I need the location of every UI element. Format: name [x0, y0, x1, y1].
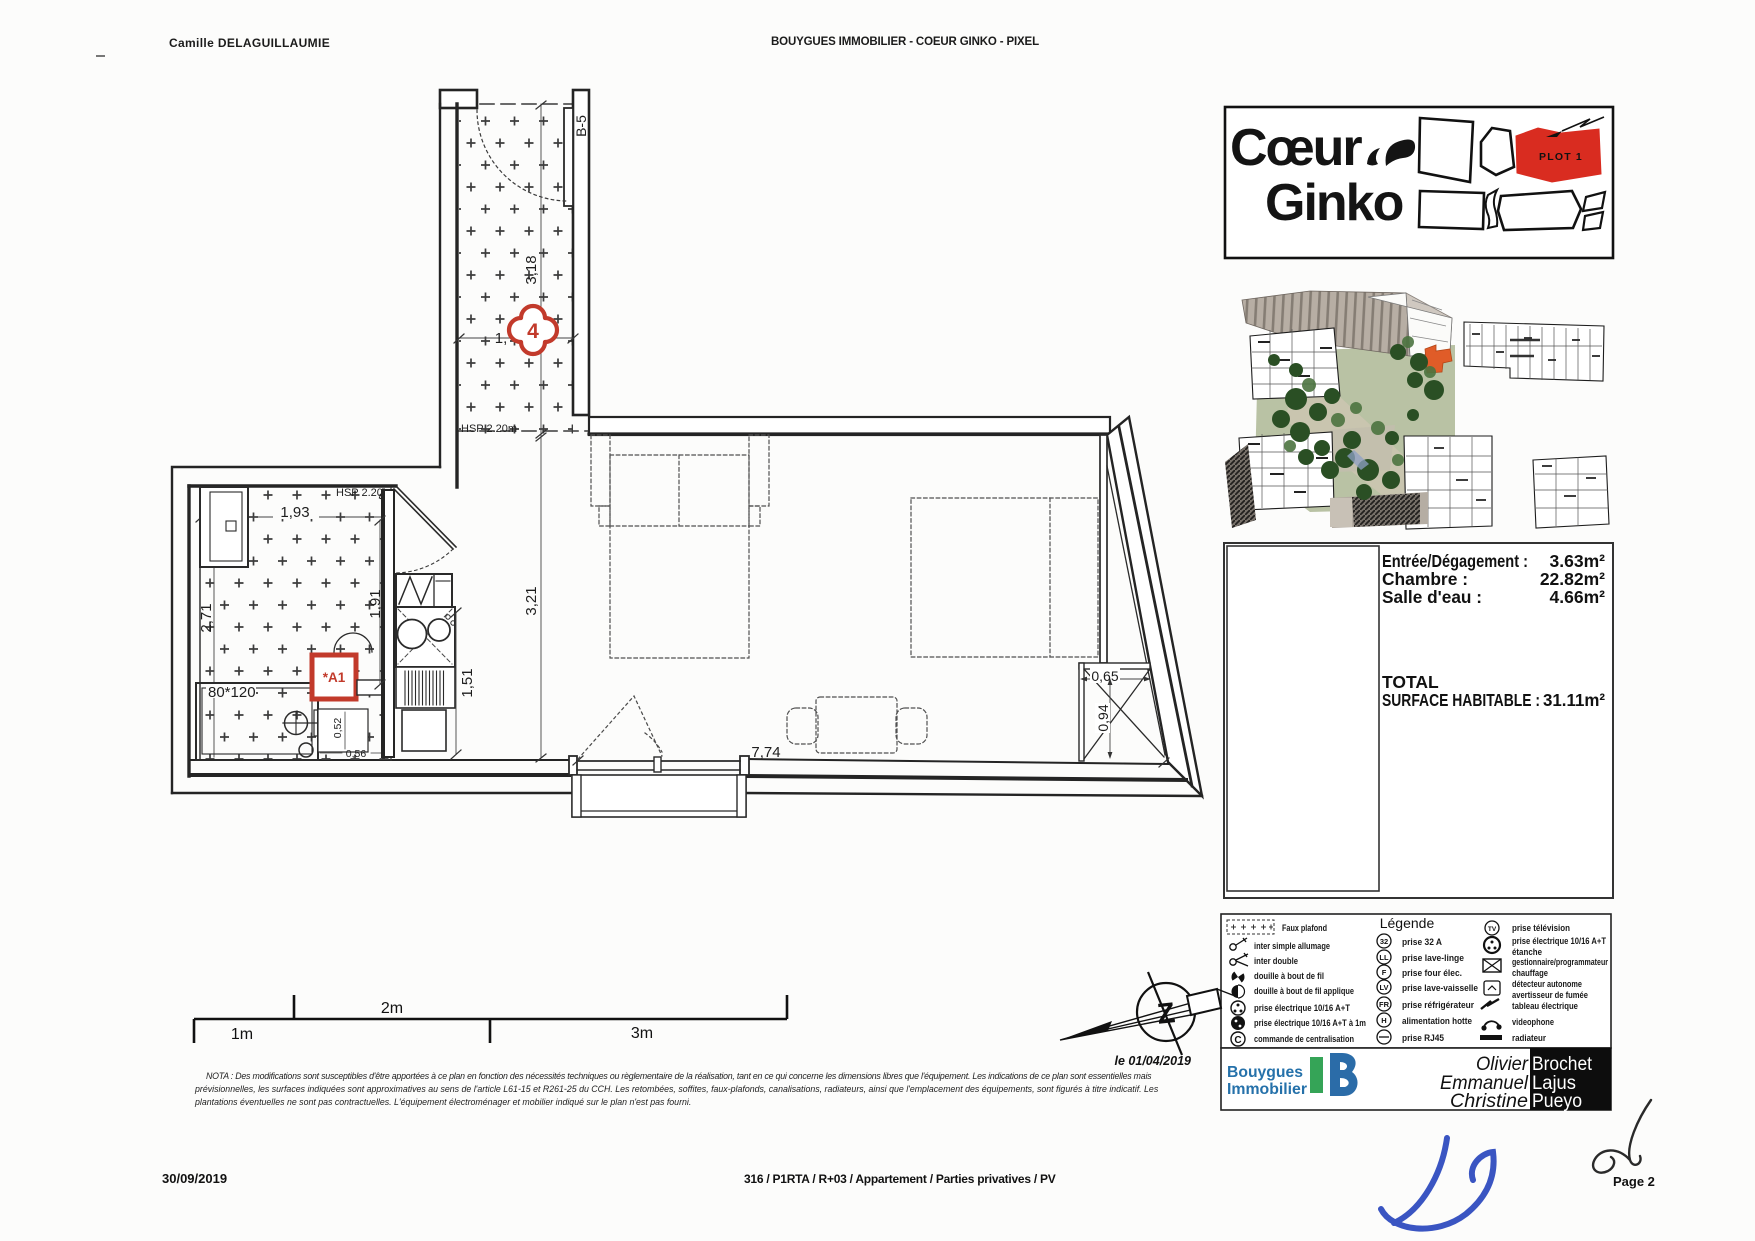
svg-text:gestionnaire/programmateur: gestionnaire/programmateur — [1512, 957, 1608, 968]
svg-text:Ginko: Ginko — [1265, 174, 1403, 232]
svg-text:3,21: 3,21 — [523, 586, 540, 615]
svg-text:1,93: 1,93 — [280, 504, 309, 521]
svg-text:32: 32 — [1380, 937, 1388, 946]
svg-text:prise RJ45: prise RJ45 — [1402, 1033, 1445, 1044]
svg-text:prise électrique 10/16 A+T: prise électrique 10/16 A+T — [1254, 1003, 1350, 1014]
svg-text:C: C — [1234, 1035, 1241, 1046]
svg-text:Légende: Légende — [1380, 915, 1435, 931]
svg-text:316 / P1RTA / R+03 / Apparteme: 316 / P1RTA / R+03 / Appartement / Parti… — [744, 1172, 1056, 1186]
svg-text:80*120: 80*120 — [208, 684, 256, 701]
svg-text:Brochet: Brochet — [1532, 1054, 1593, 1075]
svg-text:LL: LL — [1379, 953, 1389, 962]
svg-text:SURFACE HABITABLE :: SURFACE HABITABLE : — [1382, 690, 1540, 710]
svg-text:Entrée/Dégagement :: Entrée/Dégagement : — [1382, 551, 1528, 571]
svg-text:commande de centralisation: commande de centralisation — [1254, 1034, 1354, 1045]
svg-text:Cœur: Cœur — [1230, 119, 1362, 177]
svg-text:1m: 1m — [231, 1026, 253, 1043]
svg-text:chauffage: chauffage — [1512, 968, 1548, 979]
svg-text:3m: 3m — [631, 1025, 653, 1042]
svg-text:Christine: Christine — [1450, 1091, 1528, 1112]
svg-text:Bouygues: Bouygues — [1227, 1064, 1303, 1081]
svg-text:Z: Z — [1156, 997, 1177, 1031]
svg-text:inter double: inter double — [1254, 956, 1298, 967]
svg-text:Salle d'eau :: Salle d'eau : — [1382, 587, 1482, 607]
svg-text:3.63m²: 3.63m² — [1550, 551, 1606, 571]
svg-text:7,74: 7,74 — [751, 744, 780, 761]
svg-text:4.66m²: 4.66m² — [1550, 587, 1606, 607]
svg-text:1,: 1, — [495, 330, 508, 347]
svg-text:1,91: 1,91 — [367, 589, 384, 618]
svg-text:douille à bout de fil: douille à bout de fil — [1254, 971, 1324, 982]
svg-text:prise télévision: prise télévision — [1512, 923, 1570, 934]
svg-text:prise four élec.: prise four élec. — [1402, 968, 1462, 979]
svg-text:FR: FR — [1379, 1000, 1390, 1009]
svg-text:H: H — [1381, 1016, 1386, 1025]
svg-text:prise électrique 10/16 A+T à 1: prise électrique 10/16 A+T à 1m — [1254, 1018, 1366, 1029]
svg-text:TOTAL: TOTAL — [1382, 672, 1439, 692]
svg-text:avertisseur de fumée: avertisseur de fumée — [1512, 990, 1588, 1001]
svg-text:Immobilier: Immobilier — [1227, 1081, 1307, 1098]
svg-text:prise lave-linge: prise lave-linge — [1402, 953, 1464, 964]
svg-text:B-5: B-5 — [573, 115, 589, 137]
svg-text:PLOT 1: PLOT 1 — [1539, 151, 1583, 163]
svg-text:Faux plafond: Faux plafond — [1282, 923, 1327, 934]
svg-text:31.11m²: 31.11m² — [1543, 690, 1605, 710]
svg-text:prise lave-vaisselle: prise lave-vaisselle — [1402, 983, 1478, 994]
svg-text:2m: 2m — [381, 1000, 403, 1017]
svg-text:0,52: 0,52 — [332, 718, 344, 739]
svg-text:Pueyo: Pueyo — [1532, 1091, 1582, 1112]
svg-text:détecteur autonome: détecteur autonome — [1512, 979, 1582, 990]
svg-text:*A1: *A1 — [323, 670, 346, 685]
svg-text:30/09/2019: 30/09/2019 — [162, 1171, 227, 1186]
svg-text:alimentation hotte: alimentation hotte — [1402, 1016, 1472, 1027]
svg-text:douille à bout de fil applique: douille à bout de fil applique — [1254, 986, 1354, 997]
svg-text:prise électrique 10/16 A+T: prise électrique 10/16 A+T — [1512, 936, 1606, 947]
svg-text:2,71: 2,71 — [198, 603, 215, 632]
svg-text:LV: LV — [1379, 983, 1388, 992]
svg-text:radiateur: radiateur — [1512, 1033, 1546, 1044]
svg-text:le 01/04/2019: le 01/04/2019 — [1115, 1054, 1192, 1068]
svg-text:0,94: 0,94 — [1095, 704, 1111, 731]
svg-text:videophone: videophone — [1512, 1017, 1554, 1028]
svg-text:Chambre :: Chambre : — [1382, 569, 1468, 589]
svg-text:Page 2: Page 2 — [1613, 1174, 1655, 1189]
svg-text:HSP 2.20m: HSP 2.20m — [461, 423, 517, 435]
svg-text:F: F — [1382, 968, 1387, 977]
svg-text:prise réfrigérateur: prise réfrigérateur — [1402, 1000, 1474, 1011]
svg-text:Olivier: Olivier — [1476, 1054, 1529, 1075]
svg-text:3,18: 3,18 — [523, 255, 540, 284]
svg-text:prise 32 A: prise 32 A — [1402, 937, 1442, 948]
svg-text:4: 4 — [527, 320, 539, 343]
svg-text:1,51: 1,51 — [459, 668, 476, 697]
svg-text:inter simple allumage: inter simple allumage — [1254, 941, 1330, 952]
svg-text:0,56: 0,56 — [346, 748, 367, 760]
svg-text:22.82m²: 22.82m² — [1540, 569, 1605, 589]
svg-text:TV: TV — [1488, 926, 1497, 933]
svg-text:tableau électrique: tableau électrique — [1512, 1001, 1578, 1012]
svg-text:0,65: 0,65 — [1091, 668, 1118, 684]
